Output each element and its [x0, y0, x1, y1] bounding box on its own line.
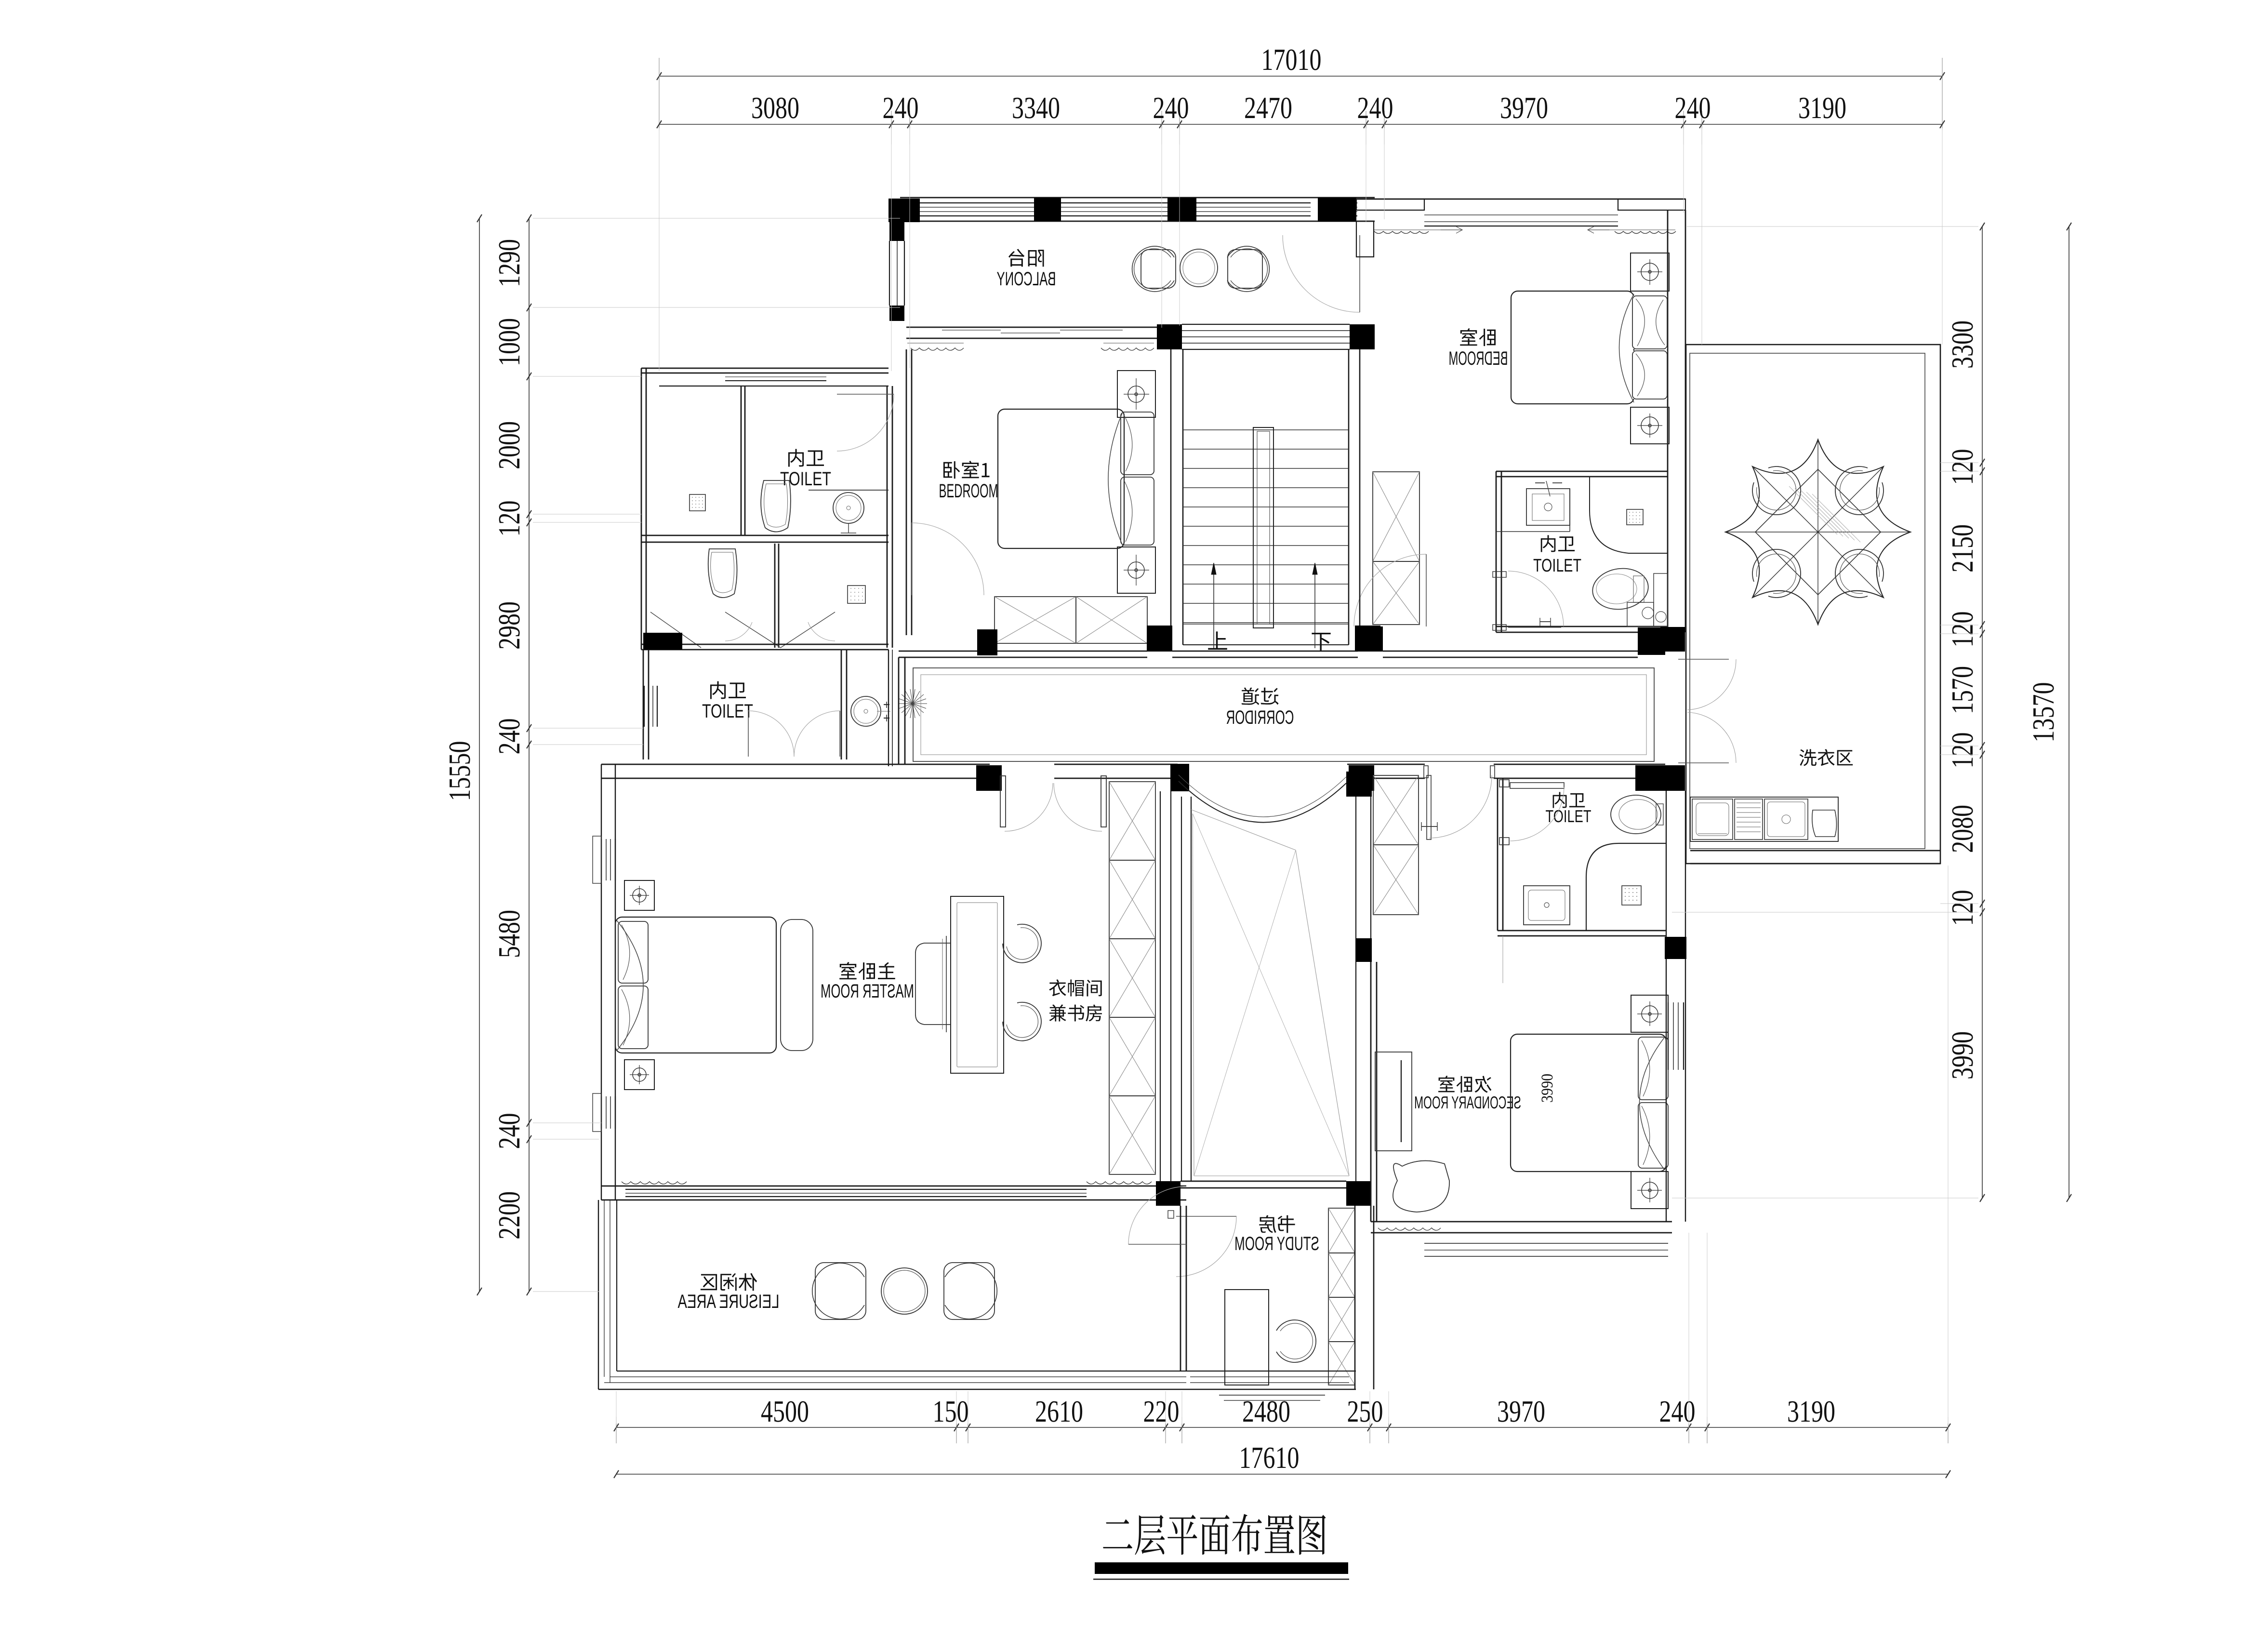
svg-text:SECONDARY ROOM: SECONDARY ROOM	[1414, 1092, 1521, 1112]
svg-text:240: 240	[1357, 91, 1393, 125]
svg-text:240: 240	[1675, 91, 1711, 125]
svg-text:2480: 2480	[1242, 1394, 1290, 1428]
svg-text:3990: 3990	[1539, 1074, 1556, 1103]
svg-text:120: 120	[492, 501, 526, 537]
svg-text:17610: 17610	[1239, 1440, 1300, 1475]
svg-text:2470: 2470	[1244, 91, 1292, 125]
svg-text:2200: 2200	[492, 1191, 526, 1239]
svg-text:240: 240	[492, 1113, 526, 1149]
svg-text:1000: 1000	[492, 318, 526, 366]
svg-text:CORRIDOR: CORRIDOR	[1226, 707, 1294, 728]
svg-text:2150: 2150	[1945, 524, 1979, 573]
svg-text:TOILET: TOILET	[1546, 806, 1592, 826]
svg-text:240: 240	[1659, 1394, 1696, 1428]
svg-text:3990: 3990	[1945, 1031, 1979, 1079]
svg-text:240: 240	[492, 719, 526, 755]
svg-text:15550: 15550	[442, 741, 477, 801]
svg-text:TOILET: TOILET	[780, 468, 831, 490]
svg-text:BEDROOM: BEDROOM	[1449, 348, 1508, 369]
svg-text:120: 120	[1945, 890, 1979, 926]
svg-text:3190: 3190	[1798, 91, 1846, 125]
svg-text:3970: 3970	[1497, 1394, 1545, 1428]
svg-text:BEDROOM: BEDROOM	[939, 480, 998, 502]
svg-text:STUDY ROOM: STUDY ROOM	[1234, 1233, 1319, 1254]
svg-text:MASTER ROOM: MASTER ROOM	[821, 981, 914, 1002]
svg-text:240: 240	[1153, 91, 1189, 125]
svg-text:150: 150	[933, 1394, 969, 1428]
svg-text:2980: 2980	[492, 601, 526, 650]
svg-text:2080: 2080	[1945, 805, 1979, 853]
svg-text:TOILET: TOILET	[1533, 556, 1581, 576]
svg-text:3080: 3080	[751, 91, 799, 125]
svg-text:120: 120	[1945, 733, 1979, 769]
svg-text:13570: 13570	[2026, 682, 2060, 743]
svg-text:1290: 1290	[492, 239, 526, 287]
svg-text:3970: 3970	[1500, 91, 1548, 125]
svg-text:2610: 2610	[1035, 1394, 1083, 1428]
svg-text:120: 120	[1945, 449, 1979, 485]
svg-text:TOILET: TOILET	[702, 701, 753, 722]
svg-text:120: 120	[1945, 612, 1979, 648]
svg-text:1570: 1570	[1945, 666, 1979, 714]
svg-text:17010: 17010	[1261, 42, 1322, 77]
svg-text:2000: 2000	[492, 421, 526, 469]
svg-text:LEISURE AREA: LEISURE AREA	[677, 1291, 779, 1312]
svg-text:220: 220	[1143, 1394, 1180, 1428]
svg-text:BALCONY: BALCONY	[997, 268, 1056, 290]
svg-text:3300: 3300	[1945, 320, 1979, 369]
svg-text:3190: 3190	[1787, 1394, 1835, 1428]
svg-text:240: 240	[883, 91, 919, 125]
svg-text:5480: 5480	[492, 910, 526, 958]
svg-text:250: 250	[1347, 1394, 1383, 1428]
svg-text:3340: 3340	[1012, 91, 1060, 125]
svg-text:4500: 4500	[761, 1394, 809, 1428]
